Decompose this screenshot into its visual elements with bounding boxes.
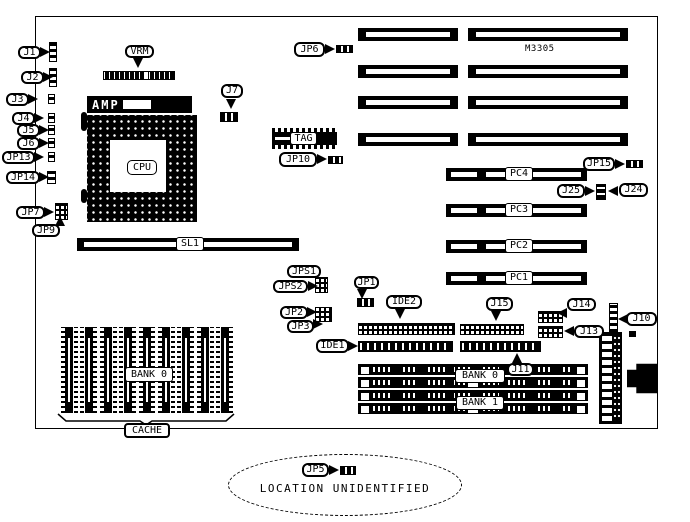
pointer: [557, 308, 567, 318]
connector-j3: [48, 94, 55, 104]
callout-jp7: JP7: [16, 206, 45, 219]
pointer: [329, 465, 339, 475]
pci-slot-label: PC1: [505, 271, 533, 285]
callout-j6: J6: [17, 137, 40, 150]
callout-vrm: VRM: [125, 45, 154, 58]
sl1-label: SL1: [176, 237, 204, 251]
cache-chip: [80, 327, 97, 413]
capacitor: [81, 189, 87, 203]
pointer: [34, 113, 44, 123]
connector-j1: [49, 42, 57, 62]
cache-chip: [177, 327, 194, 413]
pointer: [39, 125, 49, 135]
pointer: [512, 353, 522, 363]
pci-slot-label: PC3: [505, 203, 533, 217]
small-component: [629, 331, 636, 337]
pointer: [39, 172, 49, 182]
callout-j3: J3: [6, 93, 29, 106]
vrm-header: [103, 71, 175, 80]
callout-ide1: IDE1: [316, 339, 349, 353]
callout-jp3: JP3: [287, 320, 314, 333]
pointer: [564, 326, 574, 336]
callout-jp1: JP1: [354, 276, 379, 289]
simm-bank1-label: BANK 1: [456, 396, 504, 410]
callout-jp6: JP6: [294, 42, 325, 57]
jumper-jp6: [336, 45, 353, 53]
pointer: [43, 72, 53, 82]
isa-slot-segment: [468, 28, 628, 41]
pointer: [325, 44, 335, 54]
jumper-j7: [220, 112, 238, 122]
callout-jp14: JP14: [6, 171, 40, 184]
cache-chip: [61, 327, 78, 413]
ide1-header: [358, 341, 453, 352]
jumper-jp1: [357, 298, 374, 307]
callout-j7: J7: [221, 84, 243, 98]
callout-jp2: JP2: [280, 306, 308, 319]
callout-jp15: JP15: [583, 157, 615, 171]
jumper-jp15: [626, 160, 643, 168]
isa-slot-segment: [358, 28, 458, 41]
capacitor: [81, 112, 87, 131]
pointer: [585, 186, 595, 196]
power-connector: [599, 332, 622, 424]
isa-slot-segment: [468, 65, 628, 78]
callout-jp13: JP13: [2, 151, 35, 164]
callout-j10: J10: [626, 312, 657, 326]
jumper-jp5: [340, 466, 356, 475]
cache-chip: [216, 327, 233, 413]
pointer: [395, 309, 405, 319]
pointer: [39, 138, 49, 148]
pci-slot-label: PC4: [505, 167, 533, 181]
cpu-label: CPU: [127, 160, 157, 175]
pointer: [348, 341, 358, 351]
callout-j5: J5: [17, 124, 40, 137]
connector-j5: [48, 125, 55, 135]
callout-ide2: IDE2: [386, 295, 422, 309]
isa-slot-segment: [358, 133, 458, 146]
callout-cache: CACHE: [124, 423, 170, 438]
callout-j1: J1: [18, 46, 41, 59]
connector-j6: [48, 138, 55, 148]
jumper-jp10: [328, 156, 343, 164]
callout-jp9: JP9: [32, 224, 60, 237]
callout-j14: J14: [567, 298, 596, 311]
pci-slot-label: PC2: [505, 239, 533, 253]
pointer: [40, 47, 50, 57]
callout-j24: J24: [619, 183, 648, 197]
pointer: [615, 159, 625, 169]
cache-bank0-label: BANK 0: [125, 367, 173, 382]
callout-j11: J11: [507, 363, 534, 376]
connector-j4: [48, 113, 55, 123]
jumper-j25-j24: [596, 184, 606, 200]
pointer: [34, 152, 44, 162]
cache-chip: [100, 327, 117, 413]
j11-header: [460, 341, 541, 352]
amp-label: AMP: [92, 98, 120, 112]
amp-socket-bar: AMP: [87, 96, 192, 113]
j13-header: [538, 326, 563, 338]
cache-chip: [197, 327, 214, 413]
callout-j15: J15: [486, 297, 513, 311]
callout-jps2: JPS2: [273, 280, 308, 293]
callout-jp5: JP5: [302, 463, 329, 477]
pointer: [308, 281, 318, 291]
pointer: [317, 154, 327, 164]
pointer: [44, 207, 54, 217]
isa-slot-segment: [358, 96, 458, 109]
pointer: [133, 58, 143, 68]
callout-j25: J25: [557, 184, 585, 198]
isa-slot-segment: [468, 133, 628, 146]
pointer: [608, 186, 618, 196]
callout-j2: J2: [21, 71, 44, 84]
isa-slot-segment: [358, 65, 458, 78]
j15-header: [460, 324, 524, 335]
chipset-label: M3305: [525, 45, 555, 54]
motherboard-diagram: M3305 PC4 PC3 PC2 PC1 JP15 J25 J24 JP6 J…: [0, 0, 690, 522]
pointer: [307, 307, 317, 317]
simm-bank0-label: BANK 0: [455, 369, 505, 383]
location-unidentified-text: LOCATION UNIDENTIFIED: [228, 482, 462, 495]
ide2-header: [358, 323, 455, 335]
pointer: [491, 311, 501, 321]
isa-slot-segment: [468, 96, 628, 109]
callout-jps1: JPS1: [287, 265, 321, 278]
pointer: [226, 99, 236, 109]
pointer: [28, 94, 38, 104]
callout-jp10: JP10: [279, 152, 317, 167]
callout-j13: J13: [574, 325, 604, 338]
connector-jp13: [48, 152, 55, 162]
pointer: [313, 319, 323, 329]
tag-chip-label: TAG: [290, 132, 317, 145]
